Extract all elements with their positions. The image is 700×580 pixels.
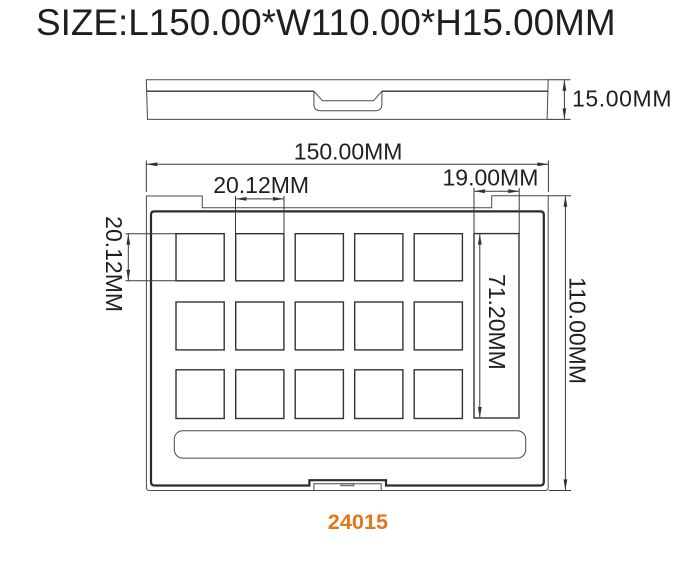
svg-text:SIZE:L150.00*W110.00*H15.00MM: SIZE:L150.00*W110.00*H15.00MM [36, 2, 616, 43]
svg-text:110.00MM: 110.00MM [565, 277, 591, 384]
svg-text:20.12MM: 20.12MM [101, 216, 127, 312]
svg-text:15.00MM: 15.00MM [572, 85, 672, 111]
svg-text:20.12MM: 20.12MM [213, 172, 309, 198]
svg-text:24015: 24015 [328, 509, 388, 534]
svg-text:71.20MM: 71.20MM [484, 274, 510, 370]
svg-text:150.00MM: 150.00MM [294, 138, 403, 164]
svg-text:19.00MM: 19.00MM [443, 165, 539, 191]
